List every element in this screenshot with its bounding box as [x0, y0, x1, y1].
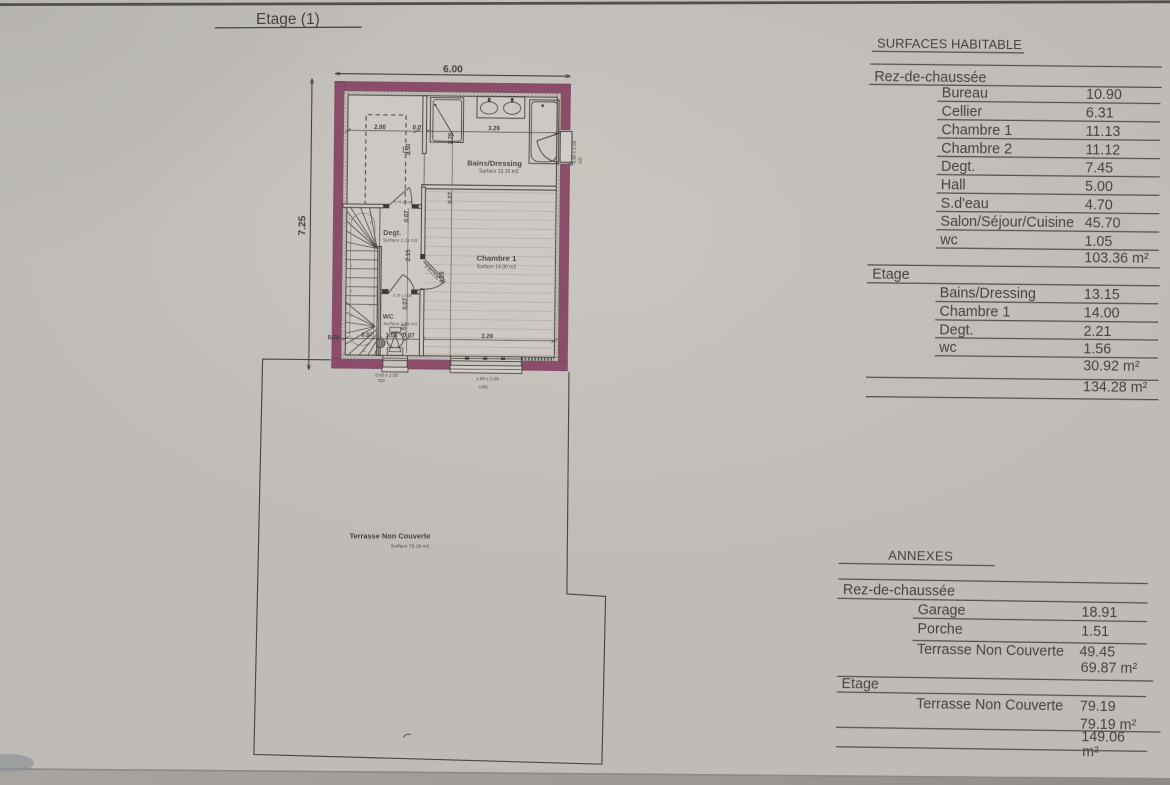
- svg-text:wc: wc: [938, 340, 957, 356]
- svg-text:49.45: 49.45: [1079, 644, 1115, 661]
- svg-text:Surface 79.19 m2: Surface 79.19 m2: [391, 543, 430, 549]
- svg-text:7.45: 7.45: [1085, 160, 1113, 176]
- svg-text:Terrasse Non Couverte: Terrasse Non Couverte: [350, 532, 431, 541]
- svg-text:Etage (1): Etage (1): [256, 11, 320, 28]
- svg-text:1.51: 1.51: [1081, 623, 1109, 639]
- svg-text:Etage: Etage: [872, 266, 910, 282]
- svg-text:Terrasse Non Couverte: Terrasse Non Couverte: [917, 641, 1064, 659]
- svg-text:103.36 m²: 103.36 m²: [1084, 250, 1149, 267]
- svg-text:6.00: 6.00: [443, 64, 463, 75]
- svg-text:WC: WC: [383, 313, 394, 320]
- svg-text:0.07: 0.07: [403, 297, 409, 309]
- svg-text:1.56: 1.56: [1083, 341, 1111, 357]
- svg-text:Rez-de-chaussée: Rez-de-chaussée: [843, 582, 955, 600]
- svg-text:4.70: 4.70: [1085, 197, 1113, 213]
- svg-text:0.07: 0.07: [448, 191, 454, 203]
- svg-text:2.50: 2.50: [406, 143, 412, 155]
- svg-text:0.90 x 2.05: 0.90 x 2.05: [572, 140, 577, 163]
- svg-text:S.d'eau: S.d'eau: [941, 196, 989, 213]
- svg-text:Garage: Garage: [918, 602, 966, 619]
- svg-text:11.13: 11.13: [1086, 124, 1121, 140]
- svg-text:30.92 m²: 30.92 m²: [1083, 358, 1140, 375]
- svg-text:2.21: 2.21: [1083, 324, 1111, 340]
- svg-text:Surface 2.21 m2: Surface 2.21 m2: [383, 238, 418, 243]
- svg-text:Cellier: Cellier: [942, 104, 983, 120]
- svg-text:0.75 x 2.05: 0.75 x 2.05: [393, 294, 411, 298]
- svg-text:11.12: 11.12: [1085, 142, 1120, 158]
- svg-text:6.31: 6.31: [1086, 105, 1114, 121]
- svg-text:7.25: 7.25: [297, 215, 308, 235]
- svg-text:3.29: 3.29: [488, 126, 500, 132]
- svg-text:134.28 m²: 134.28 m²: [1083, 379, 1148, 396]
- svg-text:wc: wc: [939, 232, 958, 248]
- svg-text:Surface 1.56 m2: Surface 1.56 m2: [383, 321, 418, 326]
- svg-text:45.70: 45.70: [1085, 215, 1121, 231]
- svg-text:Chambre 1: Chambre 1: [941, 122, 1012, 139]
- svg-text:0.75 x 2.05: 0.75 x 2.05: [394, 200, 412, 204]
- svg-text:Porche: Porche: [917, 621, 963, 638]
- svg-text:Chambre 2: Chambre 2: [941, 141, 1012, 158]
- svg-text:0.07: 0.07: [404, 210, 410, 222]
- svg-text:Chambre 1: Chambre 1: [477, 254, 518, 263]
- svg-text:0.70: 0.70: [328, 336, 340, 342]
- svg-text:Degt.: Degt.: [383, 228, 401, 237]
- svg-text:Chambre 1: Chambre 1: [939, 304, 1010, 321]
- svg-text:13.15: 13.15: [1084, 287, 1120, 303]
- svg-text:2.00: 2.00: [374, 125, 386, 131]
- svg-text:VRE: VRE: [479, 384, 489, 389]
- svg-text:Degt.: Degt.: [939, 322, 973, 338]
- svg-text:3.29: 3.29: [481, 334, 493, 340]
- svg-text:GD: GD: [378, 378, 386, 383]
- svg-text:Degt.: Degt.: [941, 159, 975, 175]
- svg-text:Bureau: Bureau: [942, 85, 988, 101]
- svg-text:Salon/Séjour/Cuisine: Salon/Séjour/Cuisine: [940, 214, 1074, 231]
- svg-text:SURFACES HABITABLE: SURFACES HABITABLE: [877, 36, 1022, 53]
- svg-text:Surface 13.15 m2: Surface 13.15 m2: [479, 168, 519, 174]
- svg-text:1.05: 1.05: [1084, 234, 1112, 250]
- svg-text:Terrasse Non Couverte: Terrasse Non Couverte: [916, 696, 1063, 714]
- svg-text:18.91: 18.91: [1081, 604, 1117, 621]
- svg-text:Bains/Dressing: Bains/Dressing: [940, 285, 1036, 302]
- svg-text:m²: m²: [1082, 744, 1099, 760]
- svg-text:14.00: 14.00: [1084, 305, 1120, 321]
- svg-text:Surface 14.00 m2: Surface 14.00 m2: [477, 264, 517, 270]
- svg-text:Hall: Hall: [941, 177, 966, 193]
- svg-text:5.00: 5.00: [1085, 179, 1113, 195]
- svg-text:Etage: Etage: [841, 676, 879, 693]
- svg-text:GD: GD: [578, 156, 583, 164]
- svg-text:79.19: 79.19: [1080, 699, 1116, 716]
- svg-text:69.87 m²: 69.87 m²: [1081, 660, 1138, 677]
- svg-text:Bains/Dressing: Bains/Dressing: [467, 158, 522, 168]
- svg-text:Rez-de-chaussée: Rez-de-chaussée: [874, 69, 986, 86]
- svg-text:ANNEXES: ANNEXES: [888, 548, 953, 564]
- svg-text:1.80 x 2.05: 1.80 x 2.05: [476, 376, 499, 381]
- svg-text:2.15: 2.15: [406, 249, 412, 261]
- svg-text:10.90: 10.90: [1086, 87, 1122, 103]
- svg-text:0.60 x 1.05: 0.60 x 1.05: [375, 372, 398, 377]
